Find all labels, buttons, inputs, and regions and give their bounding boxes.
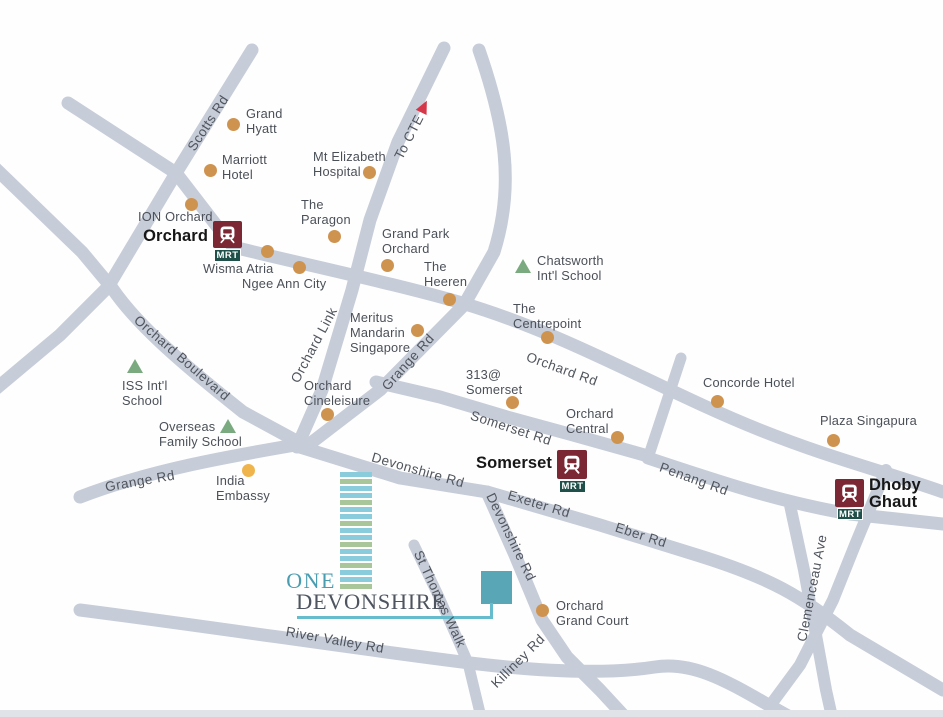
the-paragon-dot — [328, 230, 341, 243]
grand-hyatt-dot — [227, 118, 240, 131]
tower-stripe — [340, 521, 372, 526]
somerset-mrt-tag: MRT — [559, 480, 586, 493]
the-centrepoint-label: The Centrepoint — [513, 301, 581, 331]
ngee-ann-city-dot — [293, 261, 306, 274]
mt-elizabeth-label: Mt Elizabeth Hospital — [313, 149, 386, 179]
logo-underline — [297, 616, 493, 619]
somerset-station-label: Somerset — [452, 455, 552, 472]
logo-devonshire-text: DEVONSHIRE — [296, 589, 446, 615]
concorde-hotel-dot — [711, 395, 724, 408]
meritus-mandarin-label: Meritus Mandarin Singapore — [350, 310, 410, 355]
orchard-cineleisure-label: Orchard Cineleisure — [304, 378, 370, 408]
dhoby-ghaut-mrt-tag: MRT — [837, 508, 863, 520]
orchard-station-label: Orchard — [108, 228, 208, 245]
meritus-mandarin-dot — [411, 324, 424, 337]
concorde-hotel-label: Concorde Hotel — [703, 375, 795, 390]
orchard-grand-court-label: Orchard Grand Court — [556, 598, 629, 628]
overseas-school-label: Overseas Family School — [159, 419, 242, 449]
tower-stripe — [340, 570, 372, 575]
ngee-ann-city-label: Ngee Ann City — [242, 276, 326, 291]
313-somerset-dot — [506, 396, 519, 409]
orchard-mrt-icon — [213, 221, 242, 248]
tower-stripe — [340, 493, 372, 498]
marriott-hotel-dot — [204, 164, 217, 177]
the-heeren-dot — [443, 293, 456, 306]
ion-orchard-label: ION Orchard — [138, 209, 213, 224]
tower-stripe — [340, 556, 372, 561]
the-heeren-label: The Heeren — [424, 259, 467, 289]
plaza-singapura-label: Plaza Singapura — [820, 413, 917, 428]
wisma-atria-label: Wisma Atria — [203, 261, 273, 276]
map-canvas: ONE DEVONSHIRE Scotts RdOrchard Boulevar… — [0, 0, 943, 717]
tower-stripe — [340, 514, 372, 519]
train-icon — [837, 481, 862, 505]
orchard-central-label: Orchard Central — [566, 406, 614, 436]
iss-school-label: ISS Int'l School — [122, 378, 168, 408]
chatsworth-school-triangle — [515, 259, 531, 273]
chatsworth-school-label: Chatsworth Int'l School — [537, 253, 604, 283]
tower-stripe — [340, 528, 372, 533]
site-connector-line — [490, 603, 493, 618]
tower-stripe — [340, 500, 372, 505]
tower-stripe — [340, 535, 372, 540]
grand-park-orchard-label: Grand Park Orchard — [382, 226, 449, 256]
scan-edge-band — [0, 710, 943, 717]
the-centrepoint-dot — [541, 331, 554, 344]
iss-school-triangle — [127, 359, 143, 373]
tower-stripe — [340, 486, 372, 491]
dhoby-ghaut-station-label: Dhoby Ghaut — [869, 477, 943, 512]
marriott-hotel-label: Marriott Hotel — [222, 152, 267, 182]
grand-hyatt-label: Grand Hyatt — [246, 106, 283, 136]
wisma-atria-dot — [261, 245, 274, 258]
road-orchard-somerset-connector — [648, 358, 681, 458]
plaza-singapura-dot — [827, 434, 840, 447]
the-paragon-label: The Paragon — [301, 197, 351, 227]
train-icon — [559, 452, 585, 477]
dhoby-ghaut-mrt-icon — [835, 479, 864, 507]
tower-stripe — [340, 563, 372, 568]
one-devonshire-building-icon — [340, 472, 372, 591]
site-location-square — [481, 571, 512, 604]
tower-stripe — [340, 577, 372, 582]
grand-park-orchard-dot — [381, 259, 394, 272]
orchard-cineleisure-dot — [321, 408, 334, 421]
road-river-valley — [80, 610, 790, 717]
train-icon — [215, 223, 240, 246]
india-embassy-label: India Embassy — [216, 473, 270, 503]
somerset-mrt-icon — [557, 450, 587, 479]
tower-stripe — [340, 549, 372, 554]
tower-stripe — [340, 479, 372, 484]
313-somerset-label: 313@ Somerset — [466, 367, 522, 397]
tower-stripe — [340, 507, 372, 512]
orchard-grand-court-dot — [536, 604, 549, 617]
tower-stripe — [340, 542, 372, 547]
tower-stripe — [340, 472, 372, 477]
orchard-mrt-tag: MRT — [214, 249, 241, 262]
